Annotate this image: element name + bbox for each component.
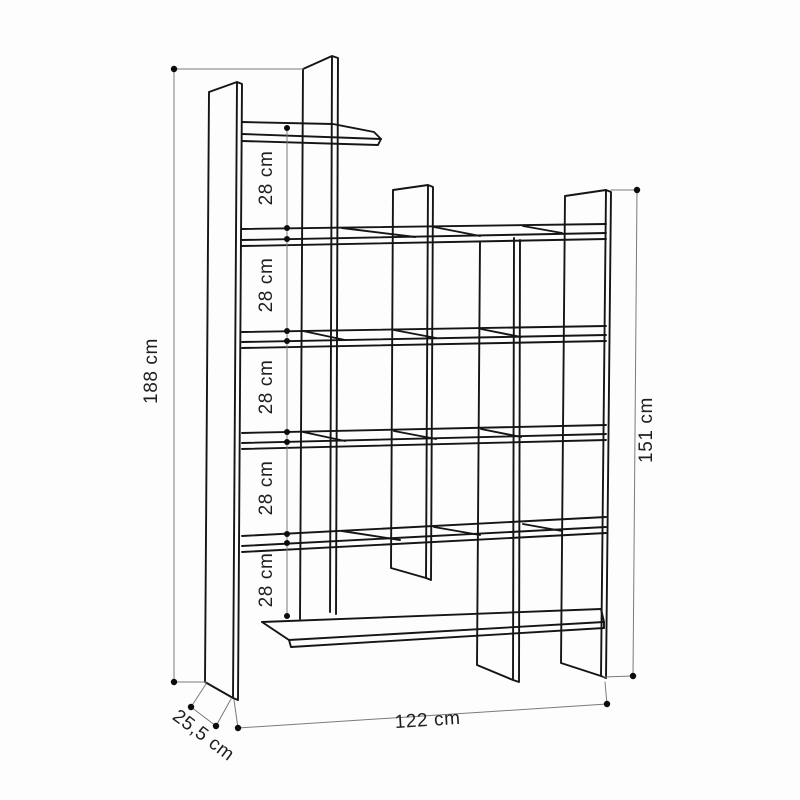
dimension-dot	[284, 328, 290, 334]
shelf-row-2	[242, 224, 606, 246]
dimension-dot	[235, 725, 241, 731]
dimension-label: 151 cm	[636, 397, 657, 463]
shelf-row-4	[242, 425, 606, 449]
dimension-dot	[171, 66, 177, 72]
dimension-total-height: 188 cm	[141, 66, 303, 685]
shelf-gap-label: 28 cm	[256, 360, 277, 415]
divider-panel-upper	[391, 185, 433, 580]
dimension-dot	[284, 540, 290, 546]
bottom-shelf	[262, 609, 604, 647]
shelf-row-3	[242, 326, 606, 348]
dimension-dot	[630, 673, 636, 679]
dimension-dot	[284, 613, 290, 619]
dimension-dot	[284, 125, 290, 131]
dimension-dot	[284, 531, 290, 537]
dimension-width: 122 cm	[234, 682, 610, 733]
extension-line	[234, 700, 238, 728]
extension-line	[603, 676, 633, 677]
dimension-dot	[284, 338, 290, 344]
bookcase-dimension-drawing: 188 cm 151 cm 122 cm 25,5 cm	[0, 0, 800, 800]
shelf-gap-label: 28 cm	[256, 258, 277, 313]
dimension-label: 188 cm	[141, 338, 162, 404]
dimension-label: 25,5 cm	[168, 706, 238, 766]
dimension-dot	[284, 225, 290, 231]
extension-line	[191, 684, 206, 707]
shelf-row-5	[242, 517, 606, 552]
extension-line	[216, 699, 231, 726]
dimension-dot	[213, 723, 219, 729]
dimension-dot	[284, 439, 290, 445]
dimension-label: 122 cm	[394, 708, 461, 733]
top-shelf	[242, 122, 381, 145]
dimension-dot	[188, 704, 194, 710]
dimension-dot	[634, 187, 640, 193]
dimension-dot	[284, 429, 290, 435]
dimension-dot	[284, 236, 290, 242]
shelf-gap-label: 28 cm	[256, 151, 277, 206]
divider-panel-lower	[477, 238, 520, 682]
shelf-gap-label: 28 cm	[256, 461, 277, 516]
dimension-dot	[171, 679, 177, 685]
shelf-gap-label: 28 cm	[256, 553, 277, 608]
dimension-dot	[604, 701, 610, 707]
left-side-panel	[205, 82, 242, 700]
extension-line	[605, 682, 607, 704]
dimension-depth: 25,5 cm	[168, 684, 238, 766]
